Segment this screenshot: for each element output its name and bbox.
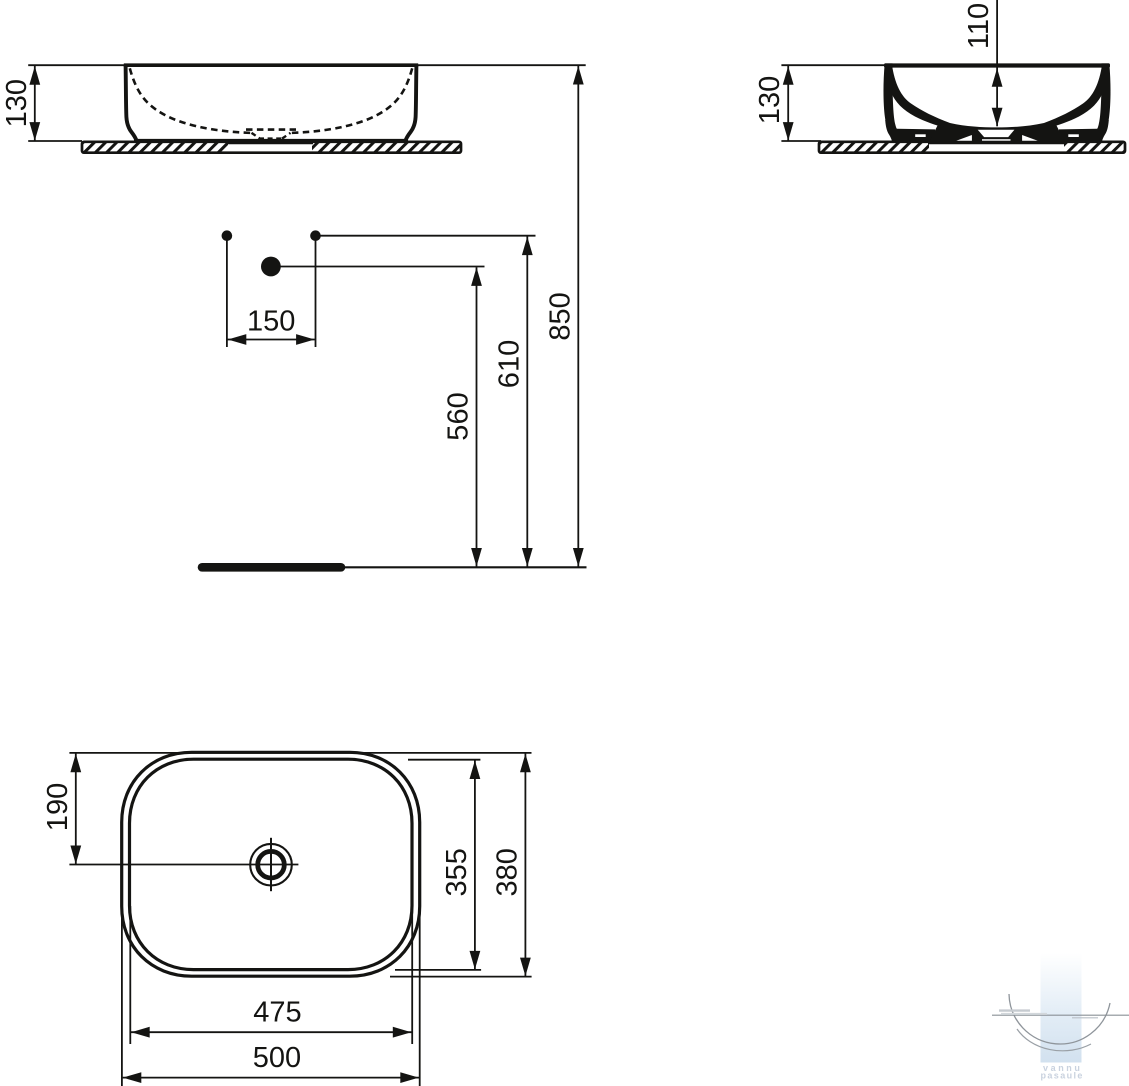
svg-text:150: 150	[247, 306, 295, 338]
svg-text:355: 355	[441, 848, 473, 896]
svg-text:pasaule: pasaule	[1041, 1071, 1084, 1081]
svg-text:850: 850	[544, 292, 576, 340]
svg-text:475: 475	[253, 997, 301, 1029]
svg-text:130: 130	[1, 79, 33, 127]
svg-text:560: 560	[443, 392, 475, 440]
svg-text:110: 110	[963, 3, 995, 49]
svg-text:380: 380	[491, 848, 523, 896]
svg-text:500: 500	[253, 1042, 301, 1074]
svg-text:190: 190	[42, 783, 74, 831]
svg-text:130: 130	[754, 76, 786, 124]
svg-text:610: 610	[493, 340, 525, 388]
